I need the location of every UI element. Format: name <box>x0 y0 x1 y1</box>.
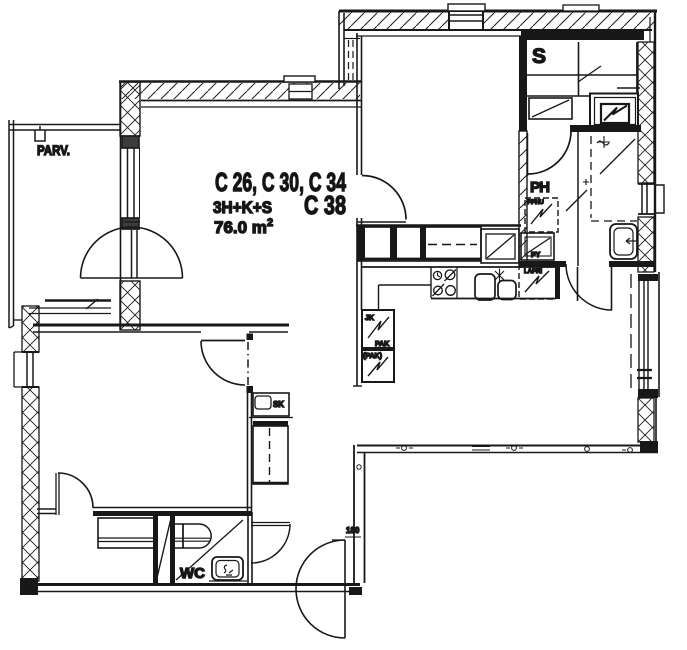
svg-text:76.0 m2: 76.0 m2 <box>214 217 273 237</box>
svg-text:C 38: C 38 <box>304 190 346 220</box>
svg-text:PARV.: PARV. <box>37 143 70 158</box>
svg-text:180: 180 <box>346 526 360 535</box>
svg-text:PY: PY <box>531 252 541 259</box>
svg-text:SK: SK <box>273 400 284 409</box>
svg-text:3H+K+S: 3H+K+S <box>213 198 272 217</box>
svg-text:PH: PH <box>530 179 550 196</box>
svg-text:JK: JK <box>365 315 374 322</box>
svg-text:S: S <box>532 45 546 68</box>
svg-text:WC: WC <box>180 565 205 582</box>
svg-text:LAPRI: LAPRI <box>524 269 542 275</box>
svg-text:PAK: PAK <box>375 341 389 348</box>
svg-text:(PAK): (PAK) <box>363 353 382 360</box>
svg-text:PPHU: PPHU <box>527 200 544 206</box>
